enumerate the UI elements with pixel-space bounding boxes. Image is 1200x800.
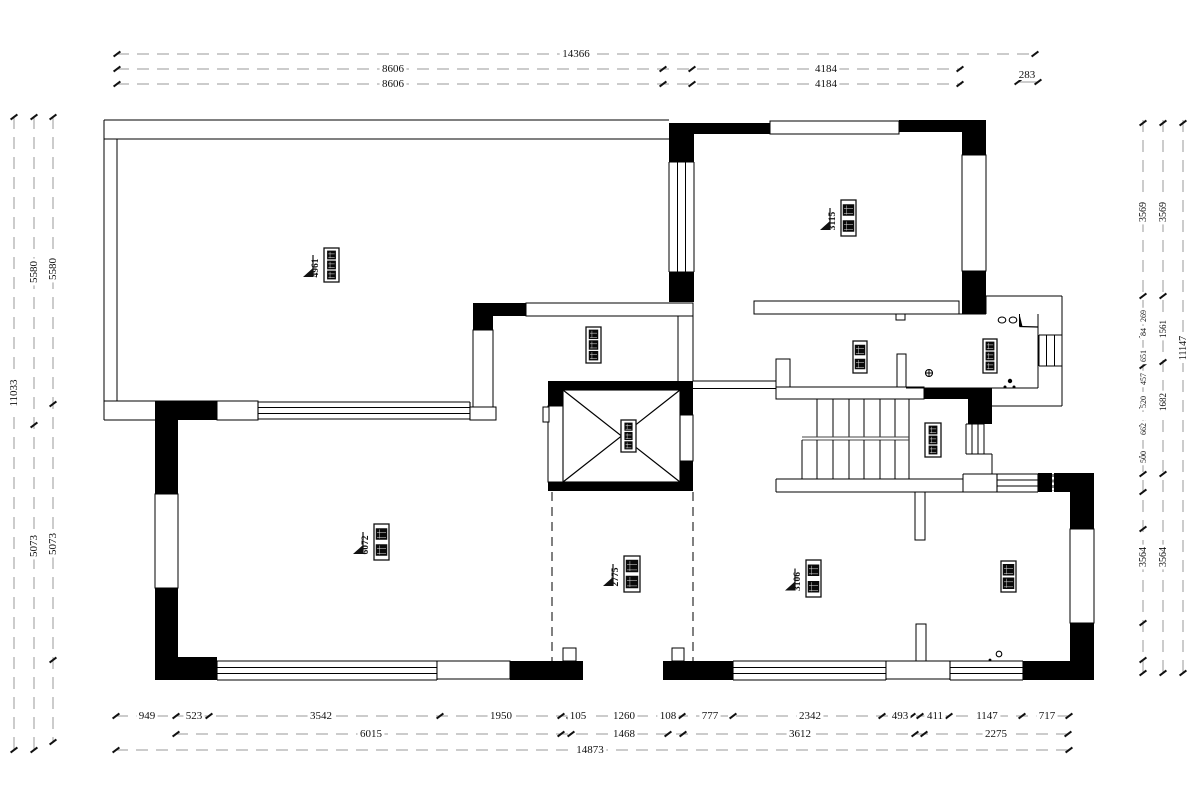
svg-text:651: 651: [1139, 350, 1148, 362]
svg-text:717: 717: [1039, 710, 1056, 722]
svg-text:1260: 1260: [613, 710, 636, 722]
svg-text:662: 662: [1139, 423, 1148, 435]
svg-text:457: 457: [1139, 373, 1148, 385]
svg-text:105: 105: [570, 710, 587, 722]
svg-text:3569: 3569: [1138, 202, 1149, 222]
svg-text:283: 283: [1019, 69, 1036, 81]
svg-text:3569: 3569: [1158, 202, 1169, 222]
svg-text:8606: 8606: [382, 63, 405, 75]
svg-text:493: 493: [892, 710, 909, 722]
svg-text:949: 949: [139, 710, 156, 722]
svg-text:5580: 5580: [47, 258, 59, 281]
svg-text:3542: 3542: [310, 710, 332, 722]
svg-text:500: 500: [1139, 451, 1148, 463]
svg-text:1950: 1950: [490, 710, 513, 722]
svg-text:4184: 4184: [815, 78, 838, 90]
svg-text:3564: 3564: [1158, 547, 1169, 567]
svg-text:5073: 5073: [28, 535, 40, 558]
svg-text:11033: 11033: [8, 379, 20, 407]
svg-text:1147: 1147: [976, 710, 998, 722]
svg-text:1682: 1682: [1158, 393, 1168, 411]
svg-text:108: 108: [660, 710, 677, 722]
svg-text:523: 523: [186, 710, 203, 722]
svg-text:520: 520: [1139, 396, 1148, 408]
svg-text:2342: 2342: [799, 710, 821, 722]
svg-text:777: 777: [702, 710, 719, 722]
svg-text:6015: 6015: [360, 728, 383, 740]
svg-text:8606: 8606: [382, 78, 405, 90]
svg-text:3612: 3612: [789, 728, 811, 740]
svg-text:14873: 14873: [576, 744, 604, 756]
svg-text:84: 84: [1139, 328, 1148, 336]
svg-text:1468: 1468: [613, 728, 636, 740]
svg-text:411: 411: [927, 710, 943, 722]
svg-text:11147: 11147: [1178, 336, 1189, 360]
svg-text:2275: 2275: [985, 728, 1008, 740]
svg-text:1561: 1561: [1158, 320, 1168, 338]
svg-text:269: 269: [1139, 310, 1148, 322]
svg-text:14366: 14366: [562, 48, 590, 60]
svg-text:5580: 5580: [28, 261, 40, 284]
svg-text:4184: 4184: [815, 63, 838, 75]
svg-text:5073: 5073: [47, 533, 59, 556]
svg-text:3564: 3564: [1138, 547, 1149, 567]
